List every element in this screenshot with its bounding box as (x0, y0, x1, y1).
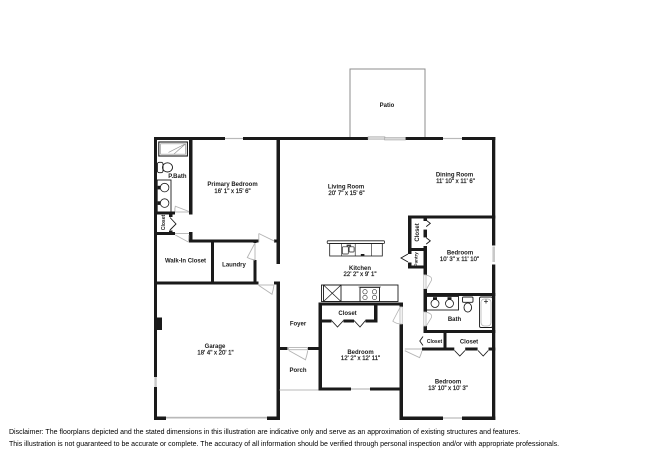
svg-text:Bedroom: Bedroom (435, 379, 461, 385)
svg-text:18' 4" x 20' 1": 18' 4" x 20' 1" (197, 350, 233, 356)
svg-text:Foyer: Foyer (290, 322, 307, 328)
svg-text:12' 2" x 12' 11": 12' 2" x 12' 11" (341, 356, 380, 362)
svg-text:Disclaimer: The floorplans dep: Disclaimer: The floorplans depicted and … (9, 429, 520, 436)
svg-text:Bath: Bath (448, 317, 462, 323)
svg-text:22' 2" x 9' 1": 22' 2" x 9' 1" (344, 272, 377, 278)
svg-text:Laundry: Laundry (222, 263, 246, 269)
svg-text:Bedroom: Bedroom (347, 350, 373, 356)
svg-text:This illustration is not guara: This illustration is not guaranteed to b… (9, 441, 559, 448)
svg-text:Dining Room: Dining Room (436, 172, 473, 178)
svg-text:Closet: Closet (338, 311, 356, 317)
svg-text:Primary Bedroom: Primary Bedroom (207, 182, 257, 188)
svg-text:Patio: Patio (380, 103, 395, 109)
svg-text:Garage: Garage (205, 344, 226, 350)
svg-text:20' 7" x 15' 6": 20' 7" x 15' 6" (328, 191, 364, 197)
svg-text:13' 10" x 10' 3": 13' 10" x 10' 3" (428, 386, 468, 392)
svg-text:Bedroom: Bedroom (447, 250, 473, 256)
svg-text:Porch: Porch (289, 368, 306, 374)
svg-text:Kitchen: Kitchen (349, 266, 371, 272)
svg-text:Pantry: Pantry (413, 252, 418, 267)
svg-text:11' 10" x 11' 6": 11' 10" x 11' 6" (436, 179, 475, 185)
svg-text:Closet: Closet (460, 340, 478, 346)
svg-text:Walk-In Closet: Walk-In Closet (165, 259, 206, 265)
svg-text:Closet: Closet (415, 223, 421, 241)
svg-text:Closet: Closet (161, 215, 167, 231)
svg-text:P.Bath: P.Bath (168, 174, 187, 180)
svg-text:Closet: Closet (427, 339, 443, 345)
svg-text:Living Room: Living Room (328, 184, 364, 190)
svg-text:16' 1" x 15' 6": 16' 1" x 15' 6" (214, 189, 250, 195)
svg-text:10' 3" x 11' 10": 10' 3" x 11' 10" (440, 257, 479, 263)
